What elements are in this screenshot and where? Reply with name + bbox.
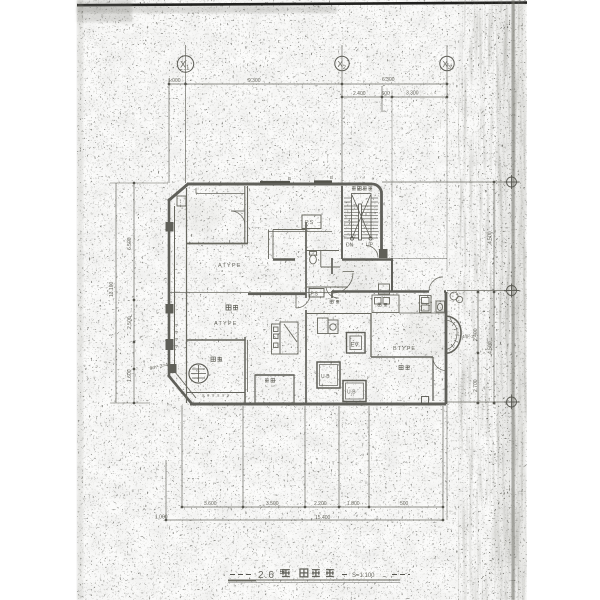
svg-text:2.400: 2.400 (353, 91, 366, 97)
svg-text:BTYPE: BTYPE (393, 346, 416, 352)
svg-text:EV: EV (351, 343, 359, 349)
svg-text:U·B: U·B (347, 390, 356, 396)
svg-text:2.200: 2.200 (314, 501, 327, 507)
svg-text:ATYPE: ATYPE (218, 263, 242, 269)
svg-text:B: B (330, 175, 333, 180)
svg-text:3.500: 3.500 (266, 501, 279, 507)
svg-text:2.6: 2.6 (258, 570, 275, 581)
svg-text:500: 500 (400, 501, 409, 507)
svg-text:1.000: 1.000 (155, 515, 168, 521)
svg-text:6.300: 6.300 (382, 77, 395, 83)
svg-text:6.500: 6.500 (127, 237, 133, 250)
svg-text:2.500: 2.500 (127, 316, 133, 329)
svg-text:3.600: 3.600 (204, 501, 217, 507)
svg-text:4m²·3: 4m²·3 (462, 334, 474, 339)
svg-text:600: 600 (382, 91, 391, 97)
svg-text:1.800: 1.800 (347, 501, 360, 507)
svg-text:9.300: 9.300 (248, 78, 261, 84)
svg-text:2.700: 2.700 (473, 379, 479, 392)
svg-text:ATYPE: ATYPE (214, 321, 238, 327)
svg-text:13.100: 13.100 (109, 281, 115, 297)
svg-text:4.500: 4.500 (488, 231, 494, 244)
svg-text:P.S: P.S (311, 292, 319, 298)
svg-text:S=1:100: S=1:100 (352, 573, 375, 579)
svg-text:U·B: U·B (321, 374, 330, 380)
svg-text:1.600: 1.600 (127, 369, 133, 382)
svg-text:15.400: 15.400 (315, 515, 331, 521)
svg-text:2.400: 2.400 (473, 328, 479, 341)
svg-text:3.300: 3.300 (406, 91, 419, 97)
svg-text:4.500: 4.500 (488, 341, 494, 354)
svg-text:DN: DN (346, 243, 354, 249)
svg-text:P.S: P.S (305, 220, 313, 226)
svg-text:B: B (288, 176, 291, 181)
svg-text:1.000: 1.000 (168, 78, 181, 84)
